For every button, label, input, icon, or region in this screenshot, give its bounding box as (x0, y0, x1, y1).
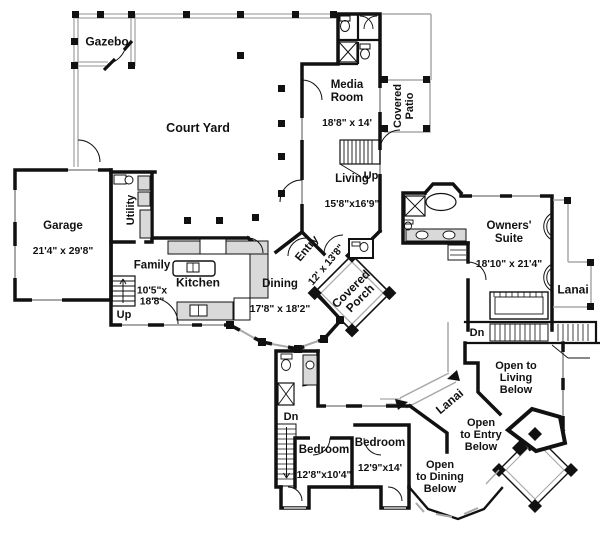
room-label-utility: Utility (125, 195, 137, 226)
stairs-label-dn-suite: Dn (470, 327, 485, 339)
stairs-dn-suite (490, 324, 590, 358)
room-label-lanai-upper: Lanai (557, 283, 588, 296)
bed (490, 292, 548, 319)
room-label-bedroom-2: Bedroom 12'9"x14' (355, 424, 405, 488)
bath-block-top (338, 14, 380, 64)
stairs-label-dn-bedroom: Dn (284, 411, 299, 423)
stairs-dn-bedroom (277, 424, 296, 486)
master-bath-fixtures (404, 194, 468, 261)
room-label-court-yard: Court Yard (166, 122, 230, 136)
room-label-media-room: Media Room 18'8" x 14' (322, 66, 372, 142)
room-label-kitchen: Kitchen (176, 276, 220, 289)
room-label-garage: Garage 21'4" x 29'8" (33, 207, 93, 271)
stairs-label-up-family: Up (117, 309, 132, 321)
room-label-family: Family 10'5"x 18'8" (134, 247, 170, 322)
room-label-bedroom-1: Bedroom 12'8"x10'4" (297, 431, 352, 495)
stairs-up-family (112, 276, 135, 306)
floor-plan: Gazebo Court Yard Media Room 18'8" x 14'… (0, 0, 600, 537)
room-label-living: Living 15'8"x16'9" (325, 160, 380, 224)
hall-bath-fixtures (278, 354, 317, 405)
room-label-owners-suite: Owners' Suite 18'10" x 21'4" (476, 207, 542, 283)
label-open-to-dining-below: Open to Dining Below (416, 459, 464, 495)
label-open-to-entry-below: Open to Entry Below (460, 417, 502, 453)
label-open-to-living-below: Open to Living Below (495, 360, 537, 396)
room-label-covered-patio: Covered Patio (392, 84, 416, 128)
room-label-gazebo: Gazebo (85, 35, 128, 48)
